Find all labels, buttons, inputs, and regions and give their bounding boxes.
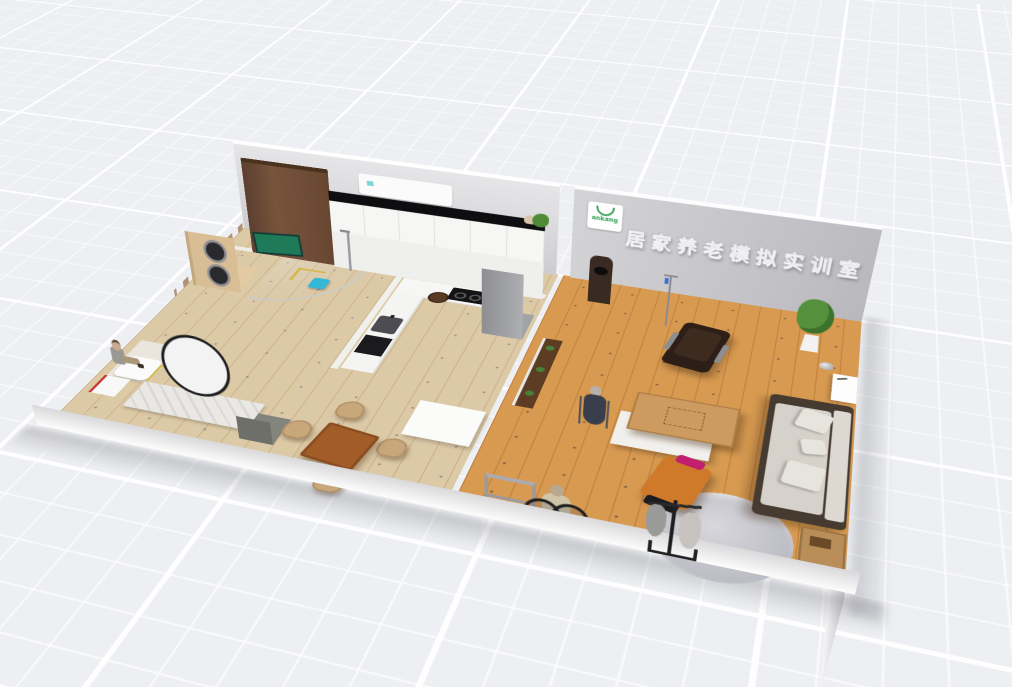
person-shoe	[137, 363, 144, 368]
design-canvas: ankang 居家养老模拟实训室	[0, 0, 1012, 687]
shower-head[interactable]	[340, 229, 358, 272]
plant-pot	[545, 345, 556, 351]
person-body	[582, 393, 606, 426]
refrigerator[interactable]	[482, 268, 524, 340]
green-board[interactable]	[252, 232, 303, 257]
plant-foliage	[794, 297, 838, 336]
iv-bag	[664, 278, 668, 284]
standing-senior-with-walker[interactable]	[578, 383, 613, 430]
water-dispenser[interactable]	[587, 255, 613, 305]
dispenser-panel	[594, 266, 608, 276]
plant-pot	[800, 334, 821, 353]
coat-rack[interactable]	[640, 494, 705, 561]
wardrobe[interactable]	[240, 157, 335, 265]
3d-scene: ankang 居家养老模拟实训室	[0, 0, 1012, 687]
ac-display	[367, 181, 374, 187]
logo-text: ankang	[587, 213, 622, 224]
faucet	[390, 315, 395, 318]
washer-dryer-stack[interactable]	[184, 231, 241, 293]
walker-handle	[578, 396, 582, 424]
brand-logo: ankang	[587, 201, 623, 232]
